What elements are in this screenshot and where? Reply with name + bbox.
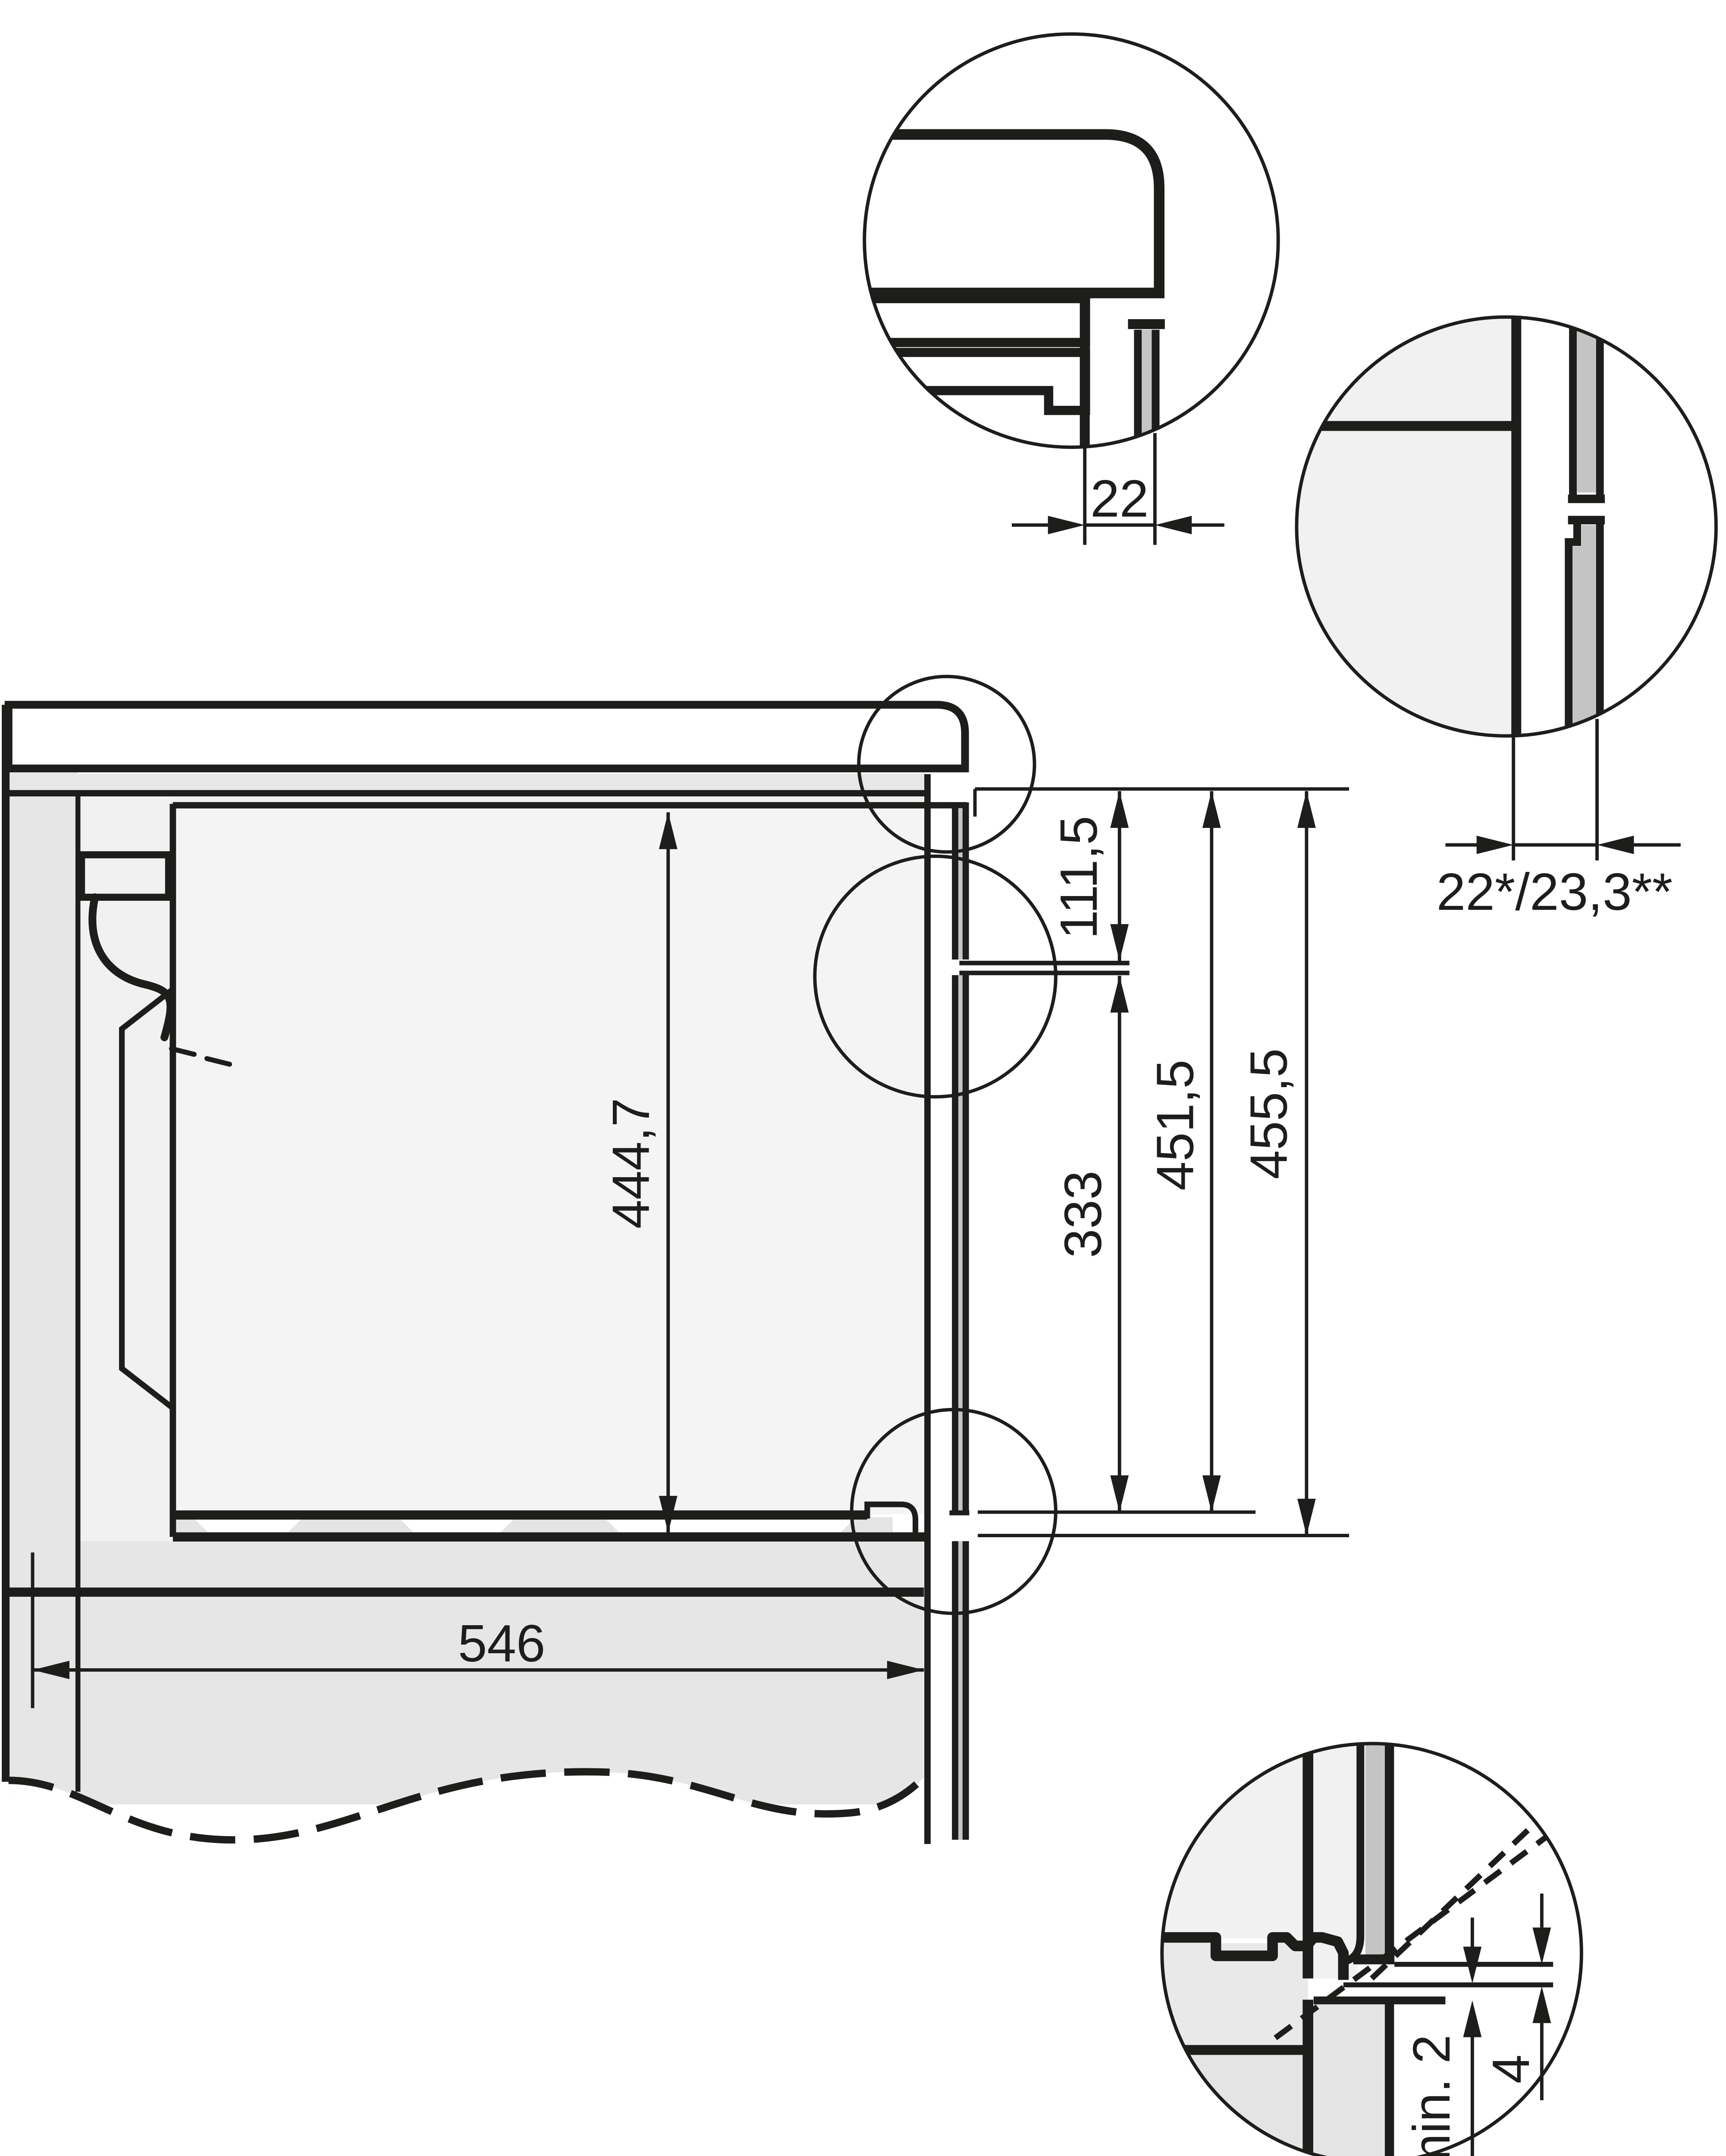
detail-worktop (847, 135, 1159, 293)
detail-top-panel (847, 299, 1086, 343)
arrowhead (1297, 1499, 1316, 1536)
lower-cabinet-fill (9, 1541, 924, 1804)
arrowhead (1110, 976, 1129, 1012)
dim-label-444-7: 444,7 (602, 1098, 660, 1229)
detail-room-fill (1294, 314, 1516, 739)
dim-label-4: 4 (1481, 2055, 1540, 2084)
dim-label-333: 333 (1054, 1171, 1112, 1258)
oven-front-core (958, 975, 963, 1513)
main-section-drawing (6, 677, 1130, 1882)
detail-top-content (847, 135, 1165, 470)
detail-stepped-panel (847, 352, 1086, 411)
installation-diagram: 111,5 333 451,5 455,5 444,7 546 (0, 0, 1726, 2156)
detail-frame-core-upper (1577, 314, 1596, 493)
oven-body (176, 808, 924, 1514)
arrowhead (1202, 791, 1221, 828)
arrowhead (1297, 791, 1316, 828)
arrowhead (1202, 1476, 1221, 1512)
detail-right-content (1294, 314, 1605, 739)
dim-label-455-5: 455,5 (1239, 1048, 1298, 1179)
arrowhead (1533, 1927, 1551, 1964)
dim-label-min-2: min. 2 (1402, 2034, 1461, 2156)
detail-frame-core (1142, 330, 1152, 470)
vent-slot (193, 1517, 303, 1534)
dimension-22-23-3: 22*/23,3** (1437, 719, 1681, 921)
lower-front-core (958, 1541, 963, 1840)
detail-frame-core (1365, 1741, 1385, 1956)
arrowhead (1048, 516, 1085, 534)
dimension-22: 22 (1012, 433, 1224, 545)
detail-ledge-fill (1314, 2004, 1386, 2156)
arrowhead (1110, 924, 1129, 961)
dim-label-22-23-3: 22*/23,3** (1437, 862, 1673, 921)
arrowhead (1463, 2000, 1482, 2037)
detail-bottom-content (1159, 1741, 1617, 2156)
worktop (9, 705, 965, 768)
detail-circle-top (864, 34, 1278, 447)
detail-room-fill (1159, 1741, 1308, 1939)
arrowhead (1477, 836, 1513, 854)
dim-label-451-5: 451,5 (1145, 1059, 1204, 1191)
arrowhead (1533, 1986, 1551, 2023)
oven-front-core (958, 808, 963, 959)
arrowhead (1155, 516, 1192, 534)
arrowhead (1597, 836, 1634, 854)
vent-slot (604, 1517, 856, 1534)
detail-frame-core-lower (1573, 525, 1596, 739)
dim-label-22: 22 (1090, 469, 1149, 528)
arrowhead (1110, 791, 1129, 828)
arrowhead (1110, 1476, 1129, 1512)
dimension-min2-and-4: min. 2 4 (1402, 1893, 1551, 2156)
vent-slot (398, 1517, 516, 1534)
detail-lower-fill (1159, 2053, 1308, 2156)
top-panel-fill (9, 774, 928, 791)
dim-label-111-5: 111,5 (1049, 816, 1108, 939)
dim-label-546: 546 (458, 1614, 546, 1673)
door-swing-dashed-line (1372, 1758, 1604, 1978)
